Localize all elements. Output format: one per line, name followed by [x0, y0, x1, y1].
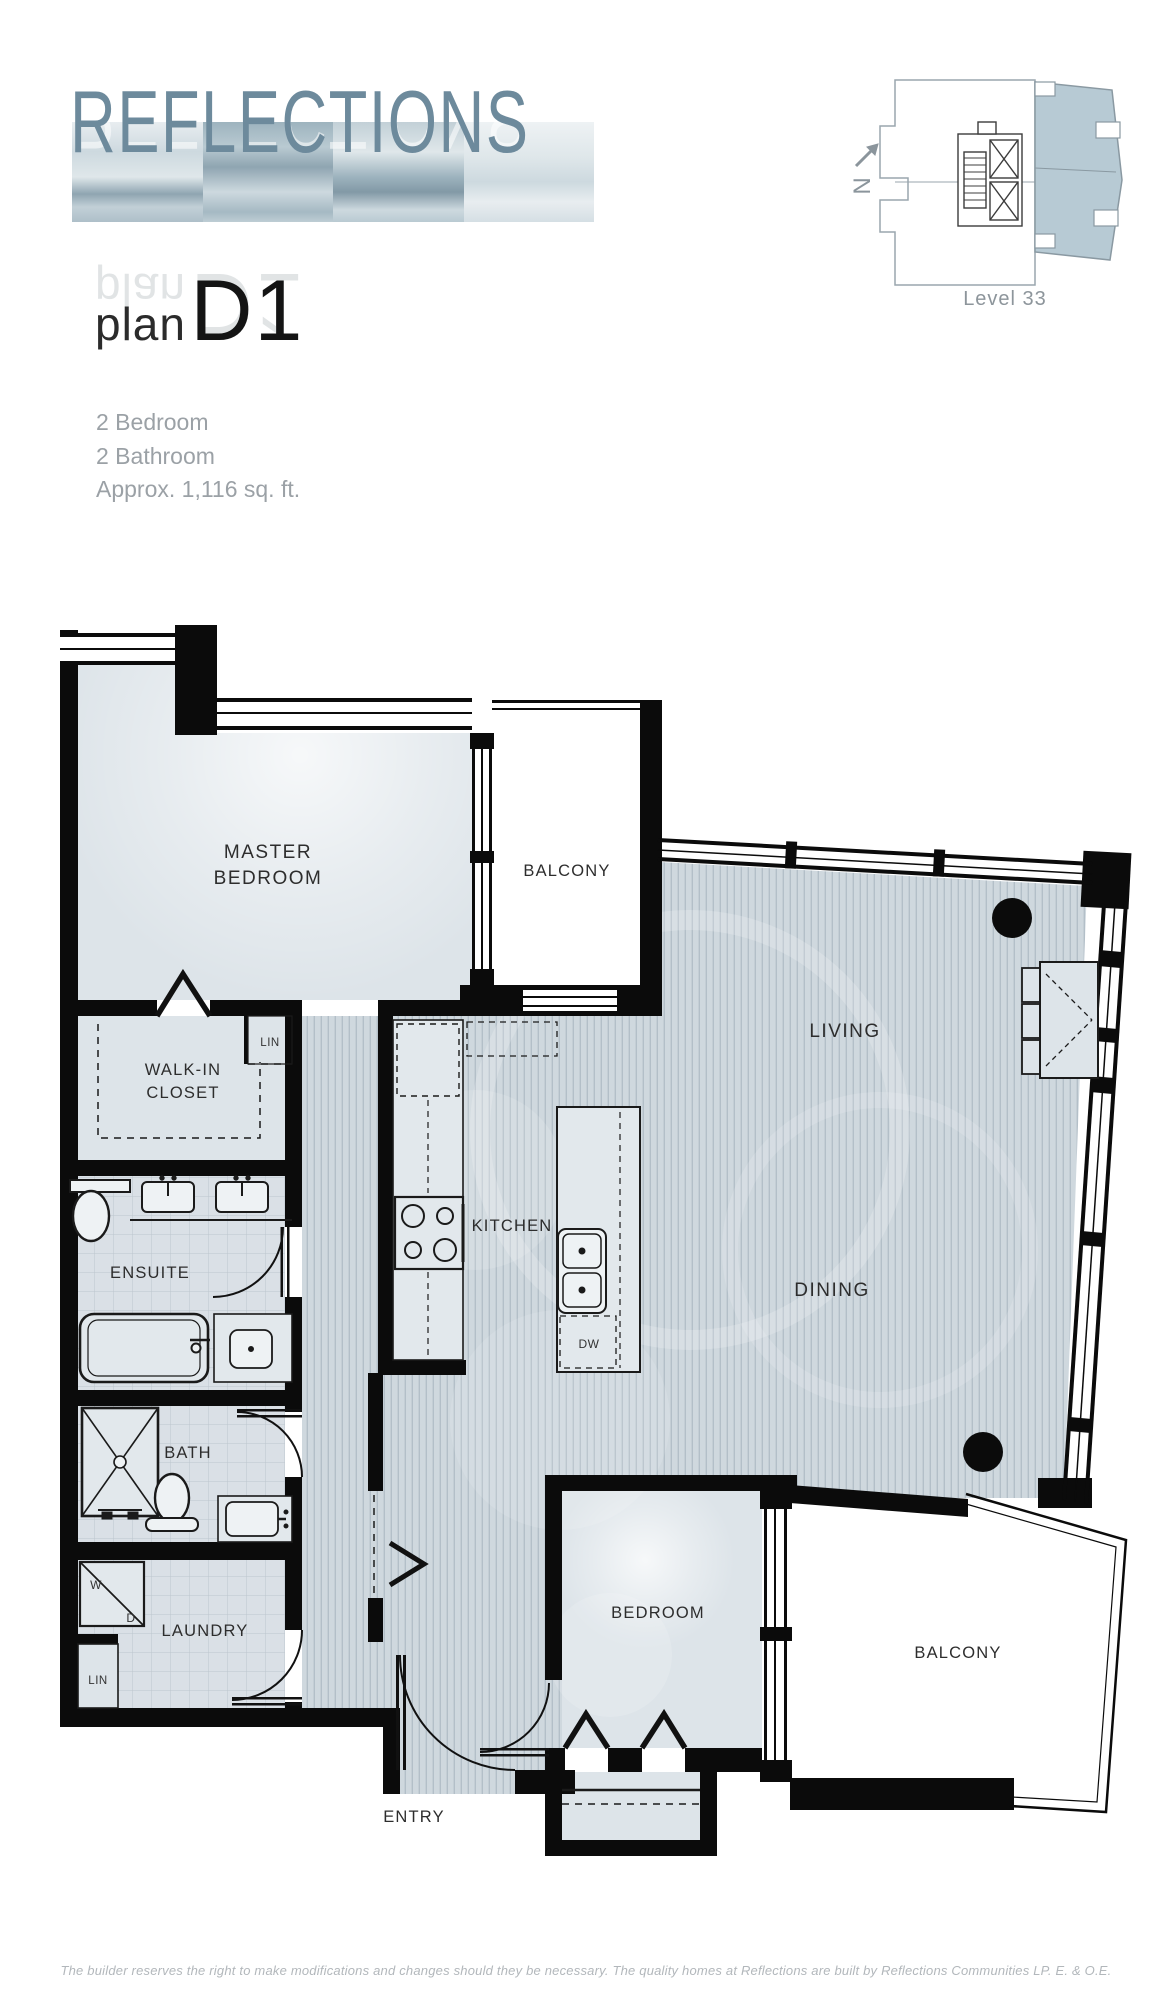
label-dishwasher: DW — [579, 1337, 600, 1351]
disclaimer: The builder reserves the right to make m… — [0, 1963, 1172, 1978]
plan-title: plan D1 — [95, 262, 304, 361]
label-kitchen: KITCHEN — [472, 1217, 553, 1235]
stove — [395, 1197, 463, 1269]
spec-bathrooms: 2 Bathroom — [96, 440, 300, 474]
spec-area: Approx. 1,116 sq. ft. — [96, 473, 300, 507]
linen-closet-lower — [78, 1634, 118, 1708]
label-dining: DINING — [794, 1280, 870, 1301]
plan-title-prefix: plan — [95, 298, 186, 350]
label-dryer: D — [126, 1611, 135, 1625]
svg-text:CLOSET: CLOSET — [146, 1084, 219, 1102]
svg-text:BEDROOM: BEDROOM — [214, 868, 323, 889]
plan-title-code: D1 — [190, 263, 304, 359]
label-entry: ENTRY — [383, 1808, 445, 1826]
label-master-bedroom: MASTER — [224, 842, 312, 863]
label-ensuite: ENSUITE — [110, 1264, 190, 1282]
label-living: LIVING — [809, 1021, 880, 1042]
label-bath: BATH — [164, 1444, 212, 1462]
label-washer: W — [90, 1578, 102, 1592]
brand-logo: REFLECTIONS — [70, 76, 529, 168]
media-unit — [1022, 962, 1098, 1078]
unit-specs: 2 Bedroom 2 Bathroom Approx. 1,116 sq. f… — [96, 406, 300, 507]
label-lin-lower: LIN — [88, 1675, 107, 1687]
kitchen-counter — [393, 1020, 463, 1360]
label-lin-upper: LIN — [260, 1037, 279, 1049]
label-laundry: LAUNDRY — [162, 1622, 249, 1640]
label-balcony-bottom: BALCONY — [914, 1644, 1001, 1662]
kitchen-island — [557, 1107, 640, 1372]
label-balcony-top: BALCONY — [523, 862, 610, 880]
floorplan-page: REFLECTIONS REFLECTIONS plan D1 plan D1 … — [0, 0, 1172, 2000]
spec-bedrooms: 2 Bedroom — [96, 406, 300, 440]
label-walkin: WALK-IN — [145, 1061, 222, 1079]
label-bedroom: BEDROOM — [611, 1604, 705, 1622]
